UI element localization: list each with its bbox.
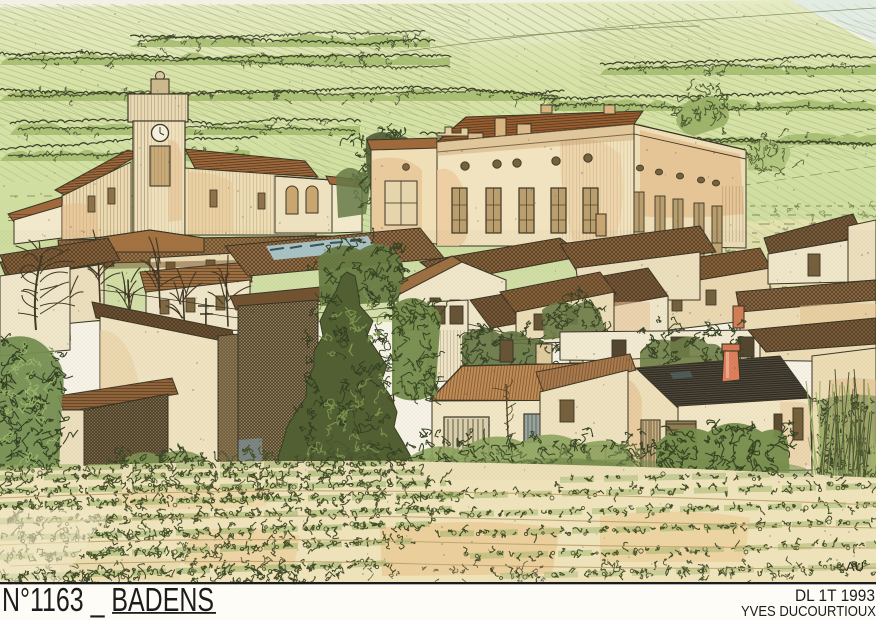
svg-text:YVES DUCOURTIOUX: YVES DUCOURTIOUX [741,603,876,620]
